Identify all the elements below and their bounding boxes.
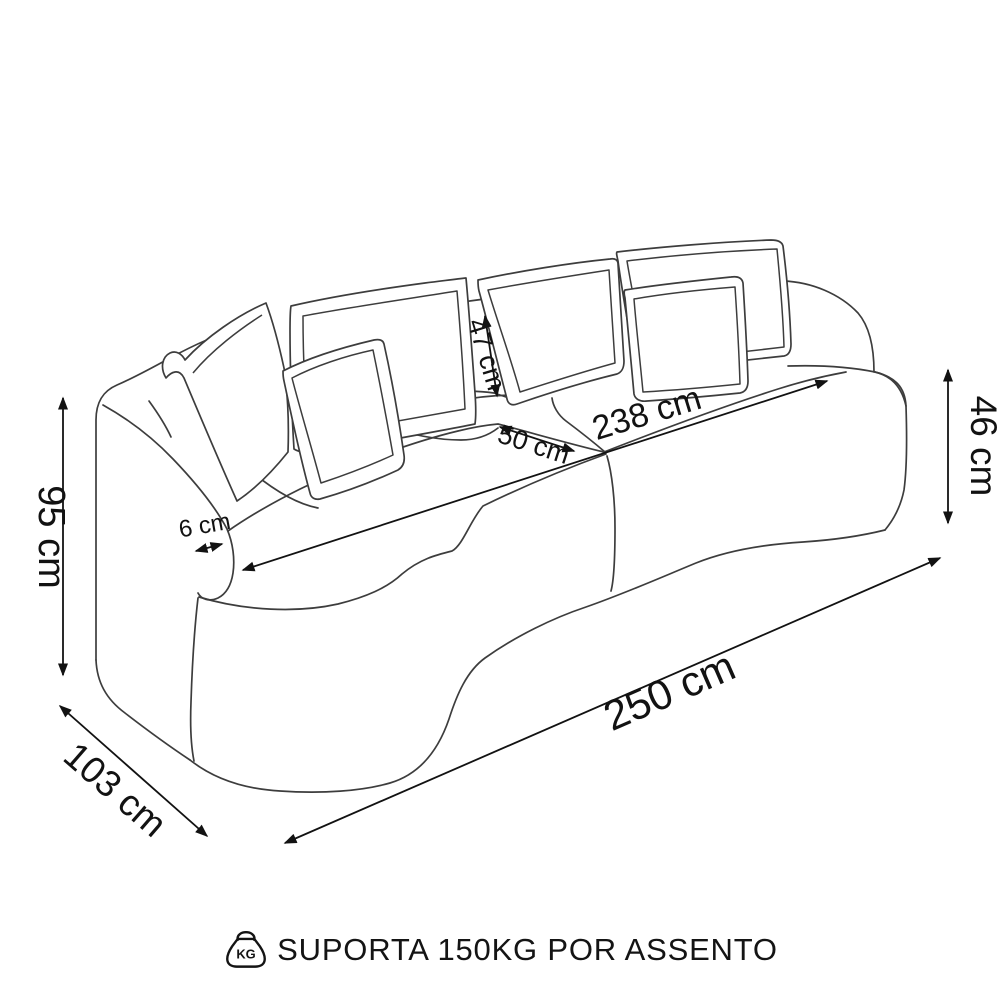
sofa-base-split <box>607 456 615 591</box>
sofa-right-armrest <box>783 281 874 372</box>
dimension-base-height: 46 cm <box>948 370 1000 523</box>
sofa-base-front-left-edge <box>191 598 198 761</box>
sofa-base-bottom-edge <box>190 530 885 792</box>
dimension-overall-width: 250 cm <box>285 558 940 843</box>
dimension-label-overall-width: 250 cm <box>597 642 742 740</box>
dimension-height: 95 cm <box>30 398 72 675</box>
kg-weight-icon: KG <box>222 926 270 974</box>
dimension-arrow-armrest-thickness <box>196 544 222 551</box>
dimension-label-seat-depth: 50 cm <box>494 419 573 470</box>
weight-capacity-text: SUPORTA 150KG POR ASSENTO <box>277 932 778 968</box>
dimension-label-depth: 103 cm <box>56 734 174 845</box>
dimension-depth: 103 cm <box>56 706 207 845</box>
kg-icon-label: KG <box>236 946 255 961</box>
sofa-base-right-face <box>875 372 907 530</box>
sofa-armrest-crease <box>149 401 171 437</box>
pillow-back-left-outer <box>163 303 289 501</box>
dimension-label-armrest-thickness: 6 cm <box>177 508 233 544</box>
dimension-label-base-height: 46 cm <box>963 396 1000 497</box>
sofa-base-left-curve <box>96 660 190 760</box>
sofa-seat-right-corner <box>788 366 906 406</box>
weight-capacity-caption: KG SUPORTA 150KG POR ASSENTO <box>0 926 1000 974</box>
sofa-dimension-diagram: 95 cm 103 cm 250 cm 238 cm 50 cm 47 cm 4… <box>0 0 1000 1000</box>
dimension-seat-depth: 50 cm <box>494 419 574 470</box>
dimension-label-height: 95 cm <box>30 485 72 588</box>
dimension-armrest-thickness: 6 cm <box>177 508 233 551</box>
